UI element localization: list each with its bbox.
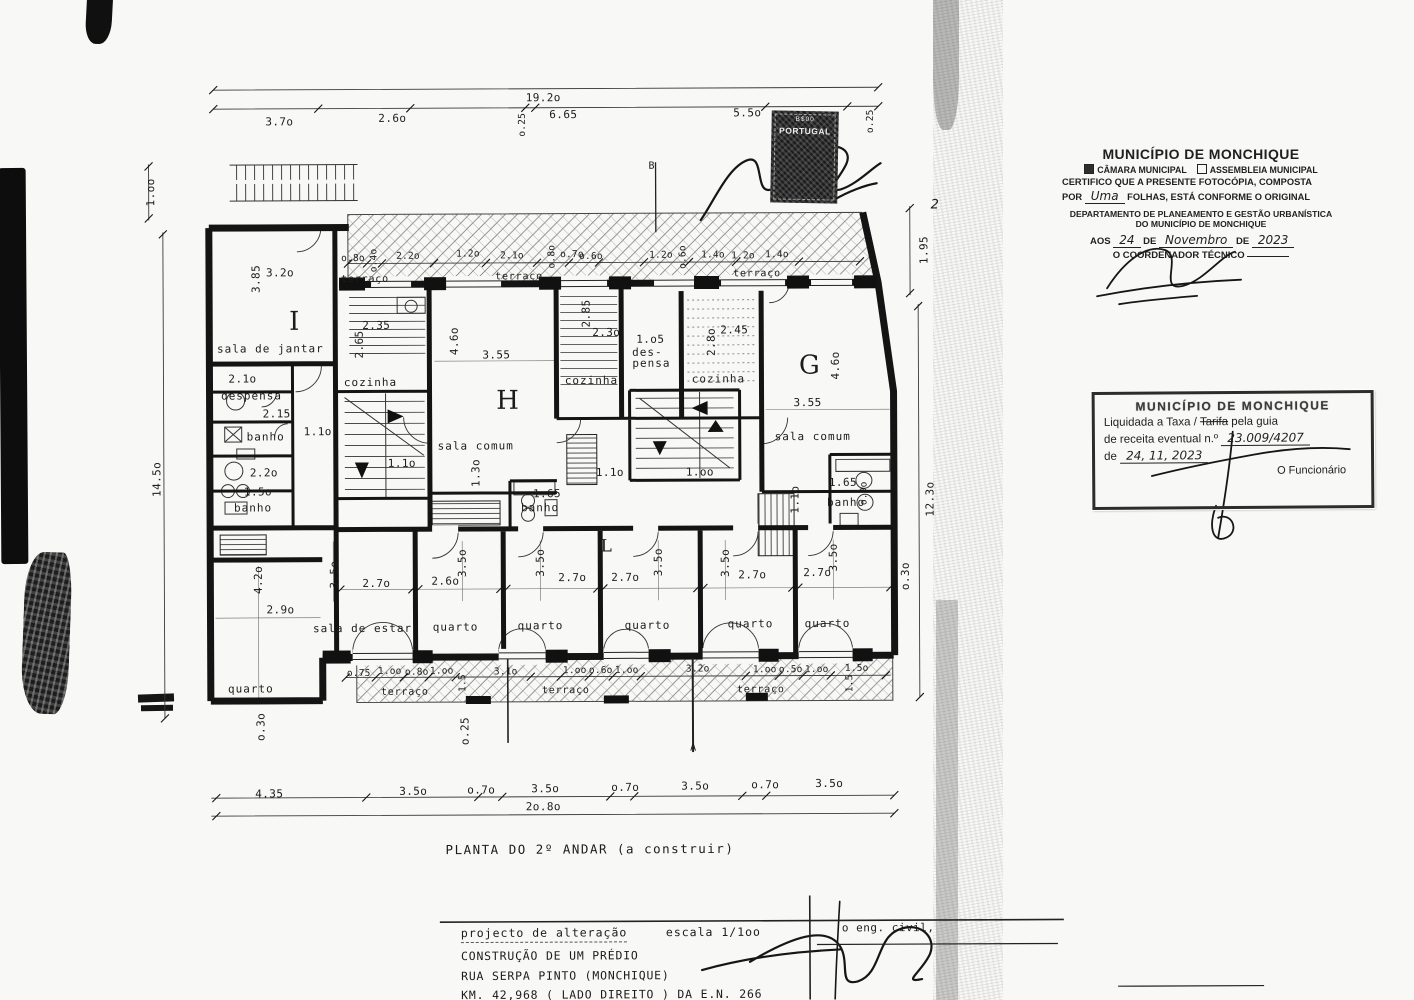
title-block-scale: escala 1/1oo: [666, 925, 761, 939]
plan-label: 1.oo: [378, 666, 402, 677]
title-block-engineer: o eng. civil,: [842, 921, 935, 934]
plan-label: A: [690, 743, 696, 754]
plan-label: 3.85: [249, 265, 262, 293]
plan-label: terraço: [737, 684, 785, 695]
plan-label: 3.5o: [328, 561, 341, 589]
dept-line2: DO MUNICÍPIO DE MONCHIQUE: [1136, 219, 1267, 229]
plan-label: 2.9o: [266, 603, 294, 616]
certification-coordinator: O COORDENADOR TÉCNICO: [1062, 250, 1340, 261]
fiscal-stamp-border: [773, 113, 835, 200]
plan-label: 2.2o: [396, 251, 420, 262]
plan-label: banho: [521, 501, 559, 514]
scanned-floor-plan-page: 19.2o3.7o2.6oo.256.655.5oo.251.oo14.5o1.…: [0, 0, 1414, 1000]
plan-label: pensa: [632, 357, 670, 370]
plan-label: 3.5o: [456, 549, 469, 577]
plan-label: 4.2o: [252, 566, 265, 594]
plan-label: quarto: [228, 682, 274, 695]
plan-label: 1.oo: [805, 664, 829, 675]
certification-date-line: AOS 24 DE Novembro DE 2023: [1090, 233, 1340, 247]
plan-label: cozinha: [565, 374, 618, 387]
plan-label: terraço: [381, 687, 429, 698]
body2-suffix: FOLHAS, ESTÁ CONFORME O ORIGINAL: [1127, 192, 1310, 202]
plan-label: 4.35: [255, 787, 283, 800]
plan-label: 2.45: [720, 323, 748, 336]
tax-line1-strike: Tarifa: [1200, 416, 1228, 428]
plan-label: 3.55: [482, 348, 510, 361]
plan-label: 2.7o: [362, 577, 390, 590]
date-month-handwritten: Novembro: [1159, 233, 1233, 248]
plan-label: 1.65: [533, 487, 561, 500]
plan-label: 1.oo: [430, 666, 454, 677]
plan-label: 1.1o: [388, 457, 416, 470]
plan-label: 2.7o: [558, 571, 586, 584]
plan-label: quarto: [433, 620, 479, 633]
plan-label: 4.6o: [829, 351, 842, 379]
plan-label: I: [289, 307, 299, 337]
dept-line1: DEPARTAMENTO DE PLANEAMENTO E GESTÃO URB…: [1070, 209, 1332, 219]
plan-label: 1.2o: [456, 248, 480, 259]
certification-dept: DEPARTAMENTO DE PLANEAMENTO E GESTÃO URB…: [1062, 209, 1340, 230]
plan-label: terraço: [495, 271, 543, 282]
plan-label: terraço: [542, 685, 590, 696]
plan-label: o.6o: [677, 245, 688, 269]
plan-label: o.8o: [546, 245, 557, 269]
plan-label: 5.5o: [733, 106, 761, 119]
certification-title: MUNICÍPIO DE MONCHIQUE: [1062, 146, 1340, 162]
plan-label: o.5o: [779, 664, 803, 675]
fiscal-revenue-stamp: B$00 PORTUGAL: [770, 110, 839, 203]
plan-label: o.9o: [858, 481, 869, 505]
option-camara: CÂMARA MUNICIPAL: [1084, 164, 1186, 175]
plan-label: 2o.8o: [526, 800, 561, 813]
tax-line3: de 24, 11, 2023: [1104, 447, 1362, 463]
plan-label: 2.85: [580, 299, 593, 327]
title-block-line2: RUA SERPA PINTO (MONCHIQUE): [461, 968, 670, 983]
plan-label: sala de estar: [313, 622, 412, 635]
date-de2: DE: [1236, 236, 1249, 247]
plan-label: 3.5o: [531, 782, 559, 795]
plan-label: terraço: [733, 268, 781, 279]
plan-label: 3.5o: [827, 543, 840, 571]
plan-label: 3.5o: [399, 785, 427, 798]
plan-label: 2.1o: [228, 372, 256, 385]
plan-label: cozinha: [692, 372, 745, 385]
camara-checkbox: [1084, 164, 1094, 174]
plan-label: 1.oo: [615, 665, 639, 676]
plan-label: G: [799, 351, 820, 381]
title-block-line1: CONSTRUÇÃO DE UM PRÉDIO: [461, 948, 639, 963]
plan-label: 1.oo: [563, 665, 587, 676]
plan-label: 1.95: [917, 236, 930, 264]
plan-label: 1.4o: [701, 249, 725, 260]
tax-line1-a: Liquidada a Taxa /: [1104, 416, 1197, 429]
plan-label: 12.3o: [923, 481, 936, 516]
plan-label: 1.oo: [144, 178, 157, 206]
plan-label: 1.2o: [731, 250, 755, 261]
plan-label: o.75: [347, 668, 371, 679]
plan-label: o.8o: [405, 667, 429, 678]
plan-label: 2: [931, 197, 939, 212]
plan-label: 4.6o: [448, 327, 461, 355]
plan-label: o.7o: [611, 781, 639, 794]
plan-label: 3.7o: [265, 115, 293, 128]
plan-label: 3.1o: [494, 666, 518, 677]
plan-label: o.7o: [751, 778, 779, 791]
plan-label: sala comum: [438, 439, 514, 452]
plan-label: 3.5o: [534, 549, 547, 577]
plan-label: terraço: [341, 274, 389, 285]
plan-label: o.25: [865, 109, 876, 133]
tax-line2-prefix: de receita eventual n.º: [1104, 433, 1218, 446]
plan-title: PLANTA DO 2º ANDAR (a construir): [445, 841, 734, 857]
plan-label: o.25: [517, 113, 528, 137]
plan-label: 1.o5: [636, 333, 664, 346]
plan-label: L: [601, 536, 612, 556]
plan-label: 2.8o: [705, 328, 718, 356]
plan-label: o.7o: [467, 783, 495, 796]
plan-label: 1.2o: [649, 250, 673, 261]
plan-label: quarto: [625, 619, 671, 632]
plan-label: 1.oo: [753, 664, 777, 675]
plan-label: H: [496, 386, 519, 416]
plan-label: 1.3o: [469, 459, 482, 487]
plan-label: 2.6o: [378, 112, 406, 125]
tax-line3-prefix: de: [1104, 451, 1117, 463]
plan-label: 1.1o: [304, 425, 332, 438]
option-assembleia: ASSEMBLEIA MUNICIPAL: [1197, 164, 1318, 175]
plan-label: 1.4o: [765, 249, 789, 260]
plan-label: 1.5: [844, 674, 855, 692]
plan-label: 3.5o: [815, 777, 843, 790]
plan-label: 1.5: [457, 674, 468, 692]
plan-label: o.6o: [579, 251, 603, 262]
plan-label: 3.2o: [266, 266, 294, 279]
assembleia-checkbox: [1197, 164, 1207, 174]
date-day-handwritten: 24: [1113, 233, 1140, 248]
plan-label: sala comum: [775, 430, 851, 443]
plan-label: quarto: [728, 617, 774, 630]
plan-label: 3.55: [794, 396, 822, 409]
plan-label: 19.2o: [526, 91, 561, 104]
coordinator-label: O COORDENADOR TÉCNICO: [1113, 250, 1245, 261]
plan-label: o.25: [458, 717, 471, 745]
title-block-project-type: projecto de alteração: [461, 925, 627, 943]
plan-label: cozinha: [344, 376, 397, 389]
plan-label: quarto: [805, 617, 851, 630]
title-block-line3: KM. 42,968 ( LADO DIREITO ) DA E.N. 266: [461, 987, 762, 1000]
plan-label: 1.5o: [845, 663, 869, 674]
certification-body-line2: POR Uma FOLHAS, ESTÁ CONFORME O ORIGINAL: [1062, 189, 1340, 205]
option-assembleia-label: ASSEMBLEIA MUNICIPAL: [1210, 165, 1318, 175]
plan-label: 1.1o: [788, 486, 801, 514]
tax-stamp: MUNICÍPIO DE MONCHIQUE Liquidada a Taxa …: [1092, 390, 1375, 510]
plan-label: B: [649, 161, 655, 172]
plan-label: banho: [247, 430, 285, 443]
certification-options: CÂMARA MUNICIPAL ASSEMBLEIA MUNICIPAL: [1062, 164, 1340, 175]
plan-label: 1.oo: [686, 465, 714, 478]
plan-label: quarto: [518, 619, 564, 632]
plan-label: 3.5o: [719, 549, 732, 577]
plan-label: 2.7o: [611, 571, 639, 584]
coordinator-signature-line: [1247, 256, 1289, 257]
plan-label: 2.65: [353, 330, 366, 358]
plan-label: sala de jantar: [217, 342, 324, 355]
tax-signoff: O Funcionário: [1104, 464, 1362, 478]
plan-label: 14.5o: [150, 462, 163, 497]
plan-label: 2.35: [362, 319, 390, 332]
date-prefix: AOS: [1090, 236, 1111, 247]
plan-label: 1.5o: [244, 485, 272, 498]
plan-label: 2.1o: [500, 250, 524, 261]
plan-label: 1.1o: [596, 466, 624, 479]
plan-label: 2.7o: [738, 568, 766, 581]
pages-handwritten: Uma: [1085, 189, 1125, 204]
plan-label: 6.65: [549, 108, 577, 121]
plan-label: 1.65: [829, 476, 857, 489]
plan-label: 3.5o: [681, 779, 709, 792]
certification-stamp: MUNICÍPIO DE MONCHIQUE CÂMARA MUNICIPAL …: [1062, 146, 1340, 261]
date-year-handwritten: 2023: [1252, 233, 1295, 248]
tax-stamp-title: MUNICÍPIO DE MONCHIQUE: [1104, 398, 1362, 414]
plan-label: 3.5o: [652, 548, 665, 576]
option-camara-label: CÂMARA MUNICIPAL: [1097, 165, 1186, 175]
plan-label: o.6o: [589, 665, 613, 676]
plan-label: o.3o: [254, 713, 267, 741]
date-de1: DE: [1143, 236, 1156, 247]
plan-label: 3.2o: [686, 663, 710, 674]
plan-label: despensa: [221, 389, 282, 402]
tax-line1: Liquidada a Taxa / Tarifa pela guia: [1104, 415, 1362, 429]
body2-prefix: POR: [1062, 192, 1082, 202]
plan-label: o.8o: [341, 253, 365, 264]
plan-label: 2.3o: [592, 326, 620, 339]
plan-label: o.4o: [368, 249, 379, 273]
tax-guide-number-handwritten: 23.009/4207: [1221, 430, 1310, 446]
plan-label: 2.2o: [250, 466, 278, 479]
tax-line2: de receita eventual n.º 23.009/4207: [1104, 430, 1362, 446]
plan-label: o.3o: [899, 562, 912, 590]
plan-label: 2.15: [263, 407, 291, 420]
tax-line1-b: pela guia: [1231, 416, 1278, 428]
tax-date-handwritten: 24, 11, 2023: [1120, 448, 1208, 464]
plan-label: banho: [234, 501, 272, 514]
certification-body-line1: CERTIFICO QUE A PRESENTE FOTOCÓPIA, COMP…: [1062, 176, 1340, 188]
